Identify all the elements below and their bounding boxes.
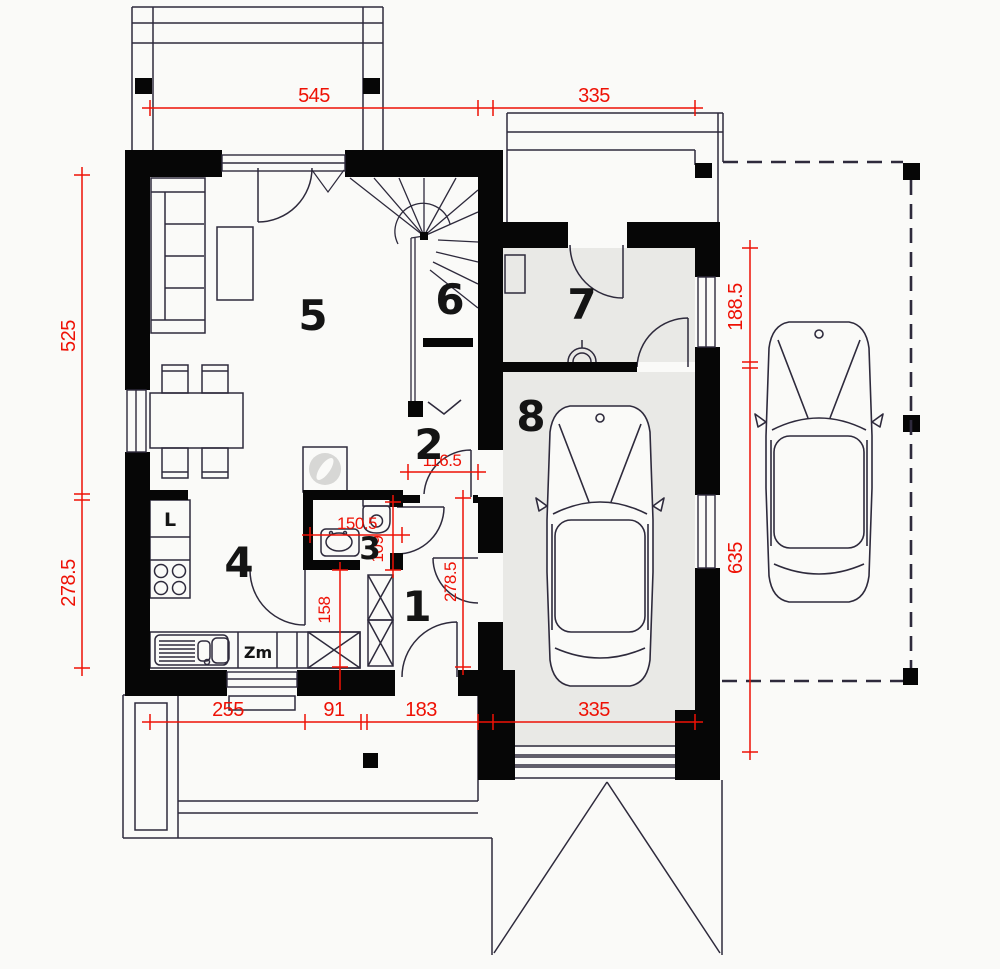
terrace-column: [363, 78, 380, 94]
dim-278-interior: 278.5: [441, 562, 460, 602]
carport-post: [903, 163, 920, 180]
wall-segment: [297, 670, 395, 696]
carport-post: [903, 668, 918, 685]
wall-segment: [695, 347, 720, 495]
wall-segment: [303, 560, 360, 570]
car-in-garage: [536, 406, 664, 686]
dim-278-left: 278.5: [58, 559, 80, 607]
room-label-4: 4: [224, 538, 253, 587]
dim-525: 525: [58, 320, 80, 352]
dim-158: 158: [315, 597, 334, 624]
dishwasher-label: Zm: [244, 643, 272, 662]
wall-segment: [345, 150, 478, 177]
wall-segment: [125, 452, 150, 670]
floor-plan-canvas: 545 335 255 91 183 335 525 278.5 188.5 6…: [0, 0, 1000, 969]
wall-segment: [473, 495, 478, 503]
room-label-8: 8: [516, 392, 545, 441]
wall-segment: [503, 362, 637, 372]
room-label-2: 2: [414, 420, 443, 469]
dim-545: 545: [298, 85, 330, 107]
dim-183: 183: [405, 699, 437, 721]
railing-post: [408, 401, 423, 417]
room-label-3: 3: [359, 531, 381, 567]
wall-segment: [503, 222, 568, 248]
wall-segment: [478, 670, 515, 780]
terrace-column: [135, 78, 152, 94]
car-in-carport: [755, 322, 883, 602]
floor-plan-drawing: 545 335 255 91 183 335 525 278.5 188.5 6…: [0, 0, 1000, 969]
porch-column: [695, 163, 712, 178]
room-7-floor: [503, 248, 695, 362]
stair-newel-post: [420, 232, 428, 240]
dim-91: 91: [323, 699, 345, 721]
wall-segment: [150, 490, 188, 500]
wall-segment: [125, 150, 150, 390]
wall-segment: [478, 497, 503, 553]
wall-segment: [303, 490, 403, 500]
terrace-column: [363, 753, 378, 768]
room-label-6: 6: [435, 275, 464, 324]
wall-segment: [423, 338, 473, 347]
room-label-5: 5: [298, 291, 327, 340]
room-label-7: 7: [567, 280, 596, 329]
fridge-label: L: [164, 509, 176, 531]
wall-segment: [390, 553, 403, 570]
dim-335-bottom: 335: [578, 699, 610, 721]
wall-segment: [695, 222, 720, 277]
wall-segment: [390, 500, 403, 507]
wall-segment: [478, 622, 503, 670]
dim-188: 188.5: [725, 283, 747, 331]
room-label-1: 1: [402, 582, 431, 631]
wall-segment: [125, 670, 227, 696]
wall-segment: [675, 710, 720, 780]
dim-255: 255: [212, 699, 244, 721]
dim-635: 635: [725, 542, 747, 574]
wall-segment: [478, 150, 503, 450]
wall-segment: [403, 495, 420, 503]
dim-335-top: 335: [578, 85, 610, 107]
